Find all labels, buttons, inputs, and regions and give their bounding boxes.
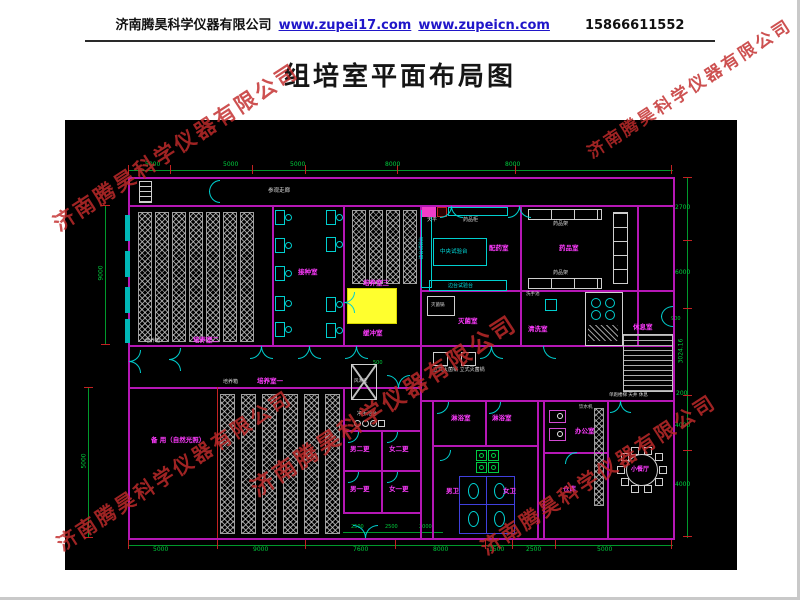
laminar-bench-icon <box>326 210 336 225</box>
fridge-icon <box>422 207 436 217</box>
company-name: 济南腾昊科学仪器有限公司 <box>116 14 272 33</box>
header: 济南腾昊科学仪器有限公司 www.zupei17.com www.zupeicn… <box>0 14 800 33</box>
laminar-bench-icon <box>275 210 285 225</box>
culture-rack <box>189 212 203 342</box>
dim-tick <box>671 540 672 549</box>
wall <box>432 400 434 540</box>
dim-tick <box>683 450 692 451</box>
dim-tick <box>683 177 692 178</box>
door-icon <box>169 359 181 371</box>
incubator-label: 培养箱 <box>223 379 238 385</box>
central-bench: 中央试验台 <box>433 238 487 266</box>
hand-sink-icon <box>545 299 557 311</box>
laminar-bench-icon <box>275 238 285 253</box>
dim-label: 5000 <box>153 547 168 553</box>
hand-sink-label: 洗手池 <box>526 292 540 298</box>
wall <box>343 512 422 514</box>
door-icon <box>489 402 501 414</box>
basin-icon <box>488 450 499 461</box>
desk-icon <box>549 428 566 441</box>
dim-label: 4000 <box>675 482 690 488</box>
culture-rack <box>240 212 254 342</box>
sink-bowl <box>605 310 615 320</box>
link-zupei17[interactable]: www.zupei17.com <box>279 18 412 33</box>
side-bench: 边台试验台 <box>429 280 507 291</box>
incubator-label: 培养箱 <box>145 338 160 344</box>
chair-icon <box>644 485 652 493</box>
dim-label: 5000 <box>290 162 305 168</box>
window <box>125 287 130 313</box>
header-divider <box>85 40 715 42</box>
dim-label: 5000 <box>82 453 88 468</box>
dim-tick <box>305 540 306 549</box>
autoclave-box: 灭菌锅 <box>427 296 455 316</box>
autoclave-label: 灭菌锅 <box>431 303 445 309</box>
door-icon <box>451 206 463 218</box>
chair-icon <box>655 478 663 486</box>
room-label-medicine: 药品室 <box>559 245 579 252</box>
door-icon <box>356 346 368 359</box>
dim-label: 200 <box>676 391 687 397</box>
culture-rack <box>352 210 366 284</box>
dim-label: 5000 <box>597 547 612 553</box>
sink-bowl <box>605 298 615 308</box>
chair-icon <box>655 453 663 461</box>
medicine-rack-label: 药品架 <box>553 221 568 227</box>
wall <box>128 177 675 179</box>
dim-tick <box>252 165 253 174</box>
central-bench-label: 中央试验台 <box>440 249 468 255</box>
chair-icon <box>659 466 667 474</box>
culture-rack <box>223 212 237 342</box>
dim-tick <box>217 540 218 549</box>
laminar-bench-icon <box>326 237 336 252</box>
room-label-wcM: 男卫 <box>446 488 459 495</box>
dim-tick <box>84 387 93 388</box>
sink-bowl <box>591 310 601 320</box>
extension-line <box>217 387 218 538</box>
wall <box>432 445 539 447</box>
room-label-buffer: 缓冲室 <box>363 330 383 337</box>
culture-rack <box>172 212 186 342</box>
dim-label: 6000 <box>675 270 690 276</box>
corridor-label: 参观走廊 <box>268 188 290 194</box>
door-icon <box>620 401 631 413</box>
laminar-bench-icon <box>326 323 336 338</box>
staircase <box>623 334 673 392</box>
door-icon <box>661 316 673 327</box>
dim-tick <box>555 540 556 549</box>
link-zupeicn[interactable]: www.zupeicn.com <box>418 18 550 33</box>
door-icon <box>387 432 398 443</box>
room-label-rest: 休息室 <box>633 324 653 331</box>
dim-label: 2700 <box>675 205 690 211</box>
dim-label: 2500 <box>385 524 398 530</box>
room-label-changeM1: 男一更 <box>350 486 370 493</box>
room-label-changeF1: 女一更 <box>389 486 409 493</box>
room-label-changeM2: 男二更 <box>350 446 370 453</box>
side-bench-label: 边台试验台 <box>448 283 473 289</box>
balance-label: 天平 <box>427 217 437 223</box>
laminar-bench-icon <box>326 297 336 312</box>
culture-rack <box>369 210 383 284</box>
washing-unit <box>585 292 623 346</box>
window <box>125 215 130 241</box>
door-icon <box>543 346 556 359</box>
window <box>125 319 130 343</box>
toilet-icon <box>468 511 479 527</box>
wall <box>343 205 345 347</box>
dim-tick <box>683 536 692 537</box>
dim-label: 8000 <box>505 162 520 168</box>
room-label-office: 办公室 <box>575 428 595 435</box>
washing-unit-hatch <box>588 325 618 341</box>
cabinet-column <box>613 212 628 284</box>
medicine-shelf <box>528 278 602 289</box>
dim-tick <box>395 540 396 549</box>
water-dispenser-label: 饮水机 <box>579 405 593 411</box>
wall <box>128 205 675 207</box>
culture-rack <box>386 210 400 284</box>
door-icon <box>437 402 449 414</box>
basin-icon <box>488 462 499 473</box>
sink-bowl <box>591 298 601 308</box>
stall-divider <box>460 504 514 505</box>
dim-tick <box>128 540 129 549</box>
door-icon <box>261 346 273 359</box>
laminar-bench-icon <box>275 266 285 281</box>
wall <box>520 205 522 347</box>
room-label-inoculation: 接种室 <box>298 269 318 276</box>
dim-label: 5000 <box>223 162 238 168</box>
laminar-bench-icon <box>275 296 285 311</box>
toilet-icon <box>468 483 479 499</box>
dim-label: 7600 <box>353 547 368 553</box>
dim-label: 8000 <box>385 162 400 168</box>
culture-rack <box>138 212 152 342</box>
door-icon <box>129 361 141 373</box>
dim-tick <box>671 165 672 174</box>
door-icon <box>440 450 451 461</box>
dim-label: 3024.16 <box>678 339 684 364</box>
culture-rack <box>155 212 169 342</box>
wall <box>673 177 675 540</box>
medicine-shelf <box>528 209 602 220</box>
room-label-culture3: 培养室三 <box>363 280 389 287</box>
window <box>125 251 130 277</box>
dim-tick <box>683 308 692 309</box>
room-label-prep: 配药室 <box>489 245 509 252</box>
dim-line-left-upper <box>105 205 106 345</box>
dim-label: 9000 <box>99 265 105 280</box>
dim-label: 9000 <box>253 547 268 553</box>
wall <box>420 400 675 402</box>
culture-rack <box>206 212 220 342</box>
chair-icon <box>631 485 639 493</box>
cabinet-label: 药品柜 <box>463 217 478 223</box>
culture-rack <box>403 210 417 284</box>
door-icon <box>348 472 359 483</box>
door-icon <box>365 525 378 538</box>
room-label-shower: 淋浴室 <box>492 415 512 422</box>
room-label-shower: 淋浴室 <box>451 415 471 422</box>
dim-line-bottom <box>128 545 673 546</box>
room-label-changeF2: 女二更 <box>389 446 409 453</box>
floorplan-canvas: 5000 5000 5000 8000 8000 2700 6000 3024.… <box>65 120 737 570</box>
stair-note: 单跑楼梯 天井 休息 <box>609 393 648 399</box>
dim-line-top <box>128 170 673 171</box>
stall-divider <box>486 477 487 533</box>
dim-label: 2500 <box>526 547 541 553</box>
door-icon <box>209 191 220 203</box>
door-icon <box>309 346 321 359</box>
dim-label: 8000 <box>433 547 448 553</box>
door-icon <box>387 472 398 483</box>
dim-tick <box>683 240 692 241</box>
air-shower-label: 风淋室 <box>354 379 368 385</box>
phone-number: 15866611552 <box>585 18 685 33</box>
page: 济南腾昊科学仪器有限公司 www.zupei17.com www.zupeicn… <box>0 0 800 600</box>
wall <box>272 205 274 347</box>
wall <box>485 400 487 445</box>
room-label-culture2: 培养室二 <box>193 337 219 344</box>
laminar-bench-icon <box>275 322 285 337</box>
room-label-wcF: 女卫 <box>503 488 516 495</box>
dim-tick <box>101 344 110 345</box>
desk-icon <box>549 410 566 423</box>
basin-icon <box>476 462 487 473</box>
medicine-rack-label: 药品架 <box>553 270 568 276</box>
room-label-wash: 清洗室 <box>528 326 548 333</box>
wall <box>128 538 675 540</box>
side-bench-label: 边台试验台 <box>419 237 425 260</box>
chair-icon <box>621 478 629 486</box>
basin-icon <box>476 450 487 461</box>
wall <box>381 430 383 514</box>
